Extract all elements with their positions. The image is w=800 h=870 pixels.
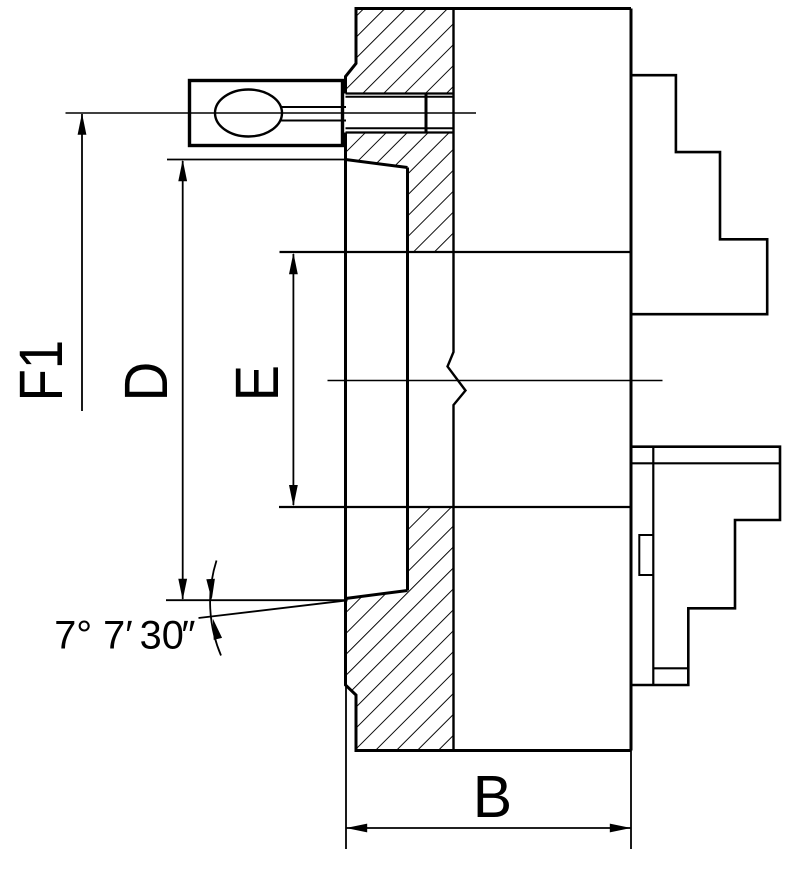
svg-text:D: D [112,362,180,402]
svg-text:B: B [473,764,512,830]
svg-text:7° 7′30″: 7° 7′30″ [54,614,195,658]
svg-text:F1: F1 [8,340,77,401]
svg-text:E: E [224,365,292,401]
